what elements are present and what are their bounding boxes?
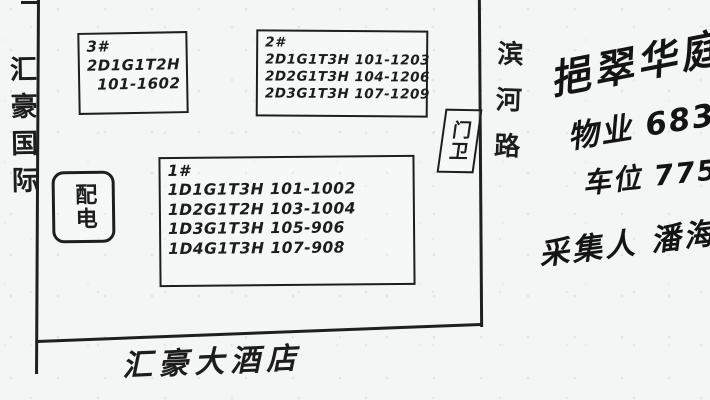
note-parking-fee: 车位 775/月 bbox=[580, 144, 710, 202]
building-id: 2# bbox=[265, 34, 419, 52]
building-box-3: 3# 2D1G1T2H 101-1602 bbox=[77, 31, 188, 115]
right-road-line bbox=[478, 0, 483, 327]
building-line: 101-1602 bbox=[87, 74, 179, 94]
left-top-corner-tick bbox=[21, 1, 38, 4]
note-collector: 采集人 潘海 bbox=[536, 208, 710, 273]
building-box-2: 2# 2D1G1T3H 101-1203 2D2G1T3H 104-1206 2… bbox=[256, 29, 429, 117]
power-distribution-box: 配电 bbox=[52, 171, 116, 244]
building-line: 2D1G1T2H bbox=[87, 55, 179, 75]
hand-drawn-site-sketch: 汇豪国际 3# 2D1G1T2H 101-1602 2# 2D1G1T3H 10… bbox=[0, 0, 710, 400]
road-label-binhe: 滨河路 bbox=[486, 39, 528, 178]
building-line: 1D1G1T3H 101-1002 bbox=[168, 179, 406, 200]
building-line: 1D4G1T3H 107-908 bbox=[168, 237, 406, 258]
building-line: 1D2G1T2H 103-1004 bbox=[168, 199, 406, 220]
gate-guard-box: 门卫 bbox=[437, 109, 483, 174]
building-id: 1# bbox=[167, 160, 405, 181]
hotel-label-bottom: 汇豪大酒店 bbox=[121, 333, 303, 385]
power-distribution-label: 配电 bbox=[67, 183, 100, 231]
building-line: 1D3G1T3H 105-906 bbox=[168, 218, 406, 239]
building-box-1: 1# 1D1G1T3H 101-1002 1D2G1T2H 103-1004 1… bbox=[158, 155, 415, 287]
building-line: 2D1G1T3H 101-1203 bbox=[265, 51, 419, 69]
complex-label-left: 汇豪国际 bbox=[1, 55, 43, 204]
building-line: 2D2G1T3H 104-1206 bbox=[265, 68, 419, 86]
building-id: 3# bbox=[86, 36, 178, 56]
gate-guard-label: 门卫 bbox=[443, 120, 476, 162]
building-line: 2D3G1T3H 107-1209 bbox=[265, 85, 419, 103]
